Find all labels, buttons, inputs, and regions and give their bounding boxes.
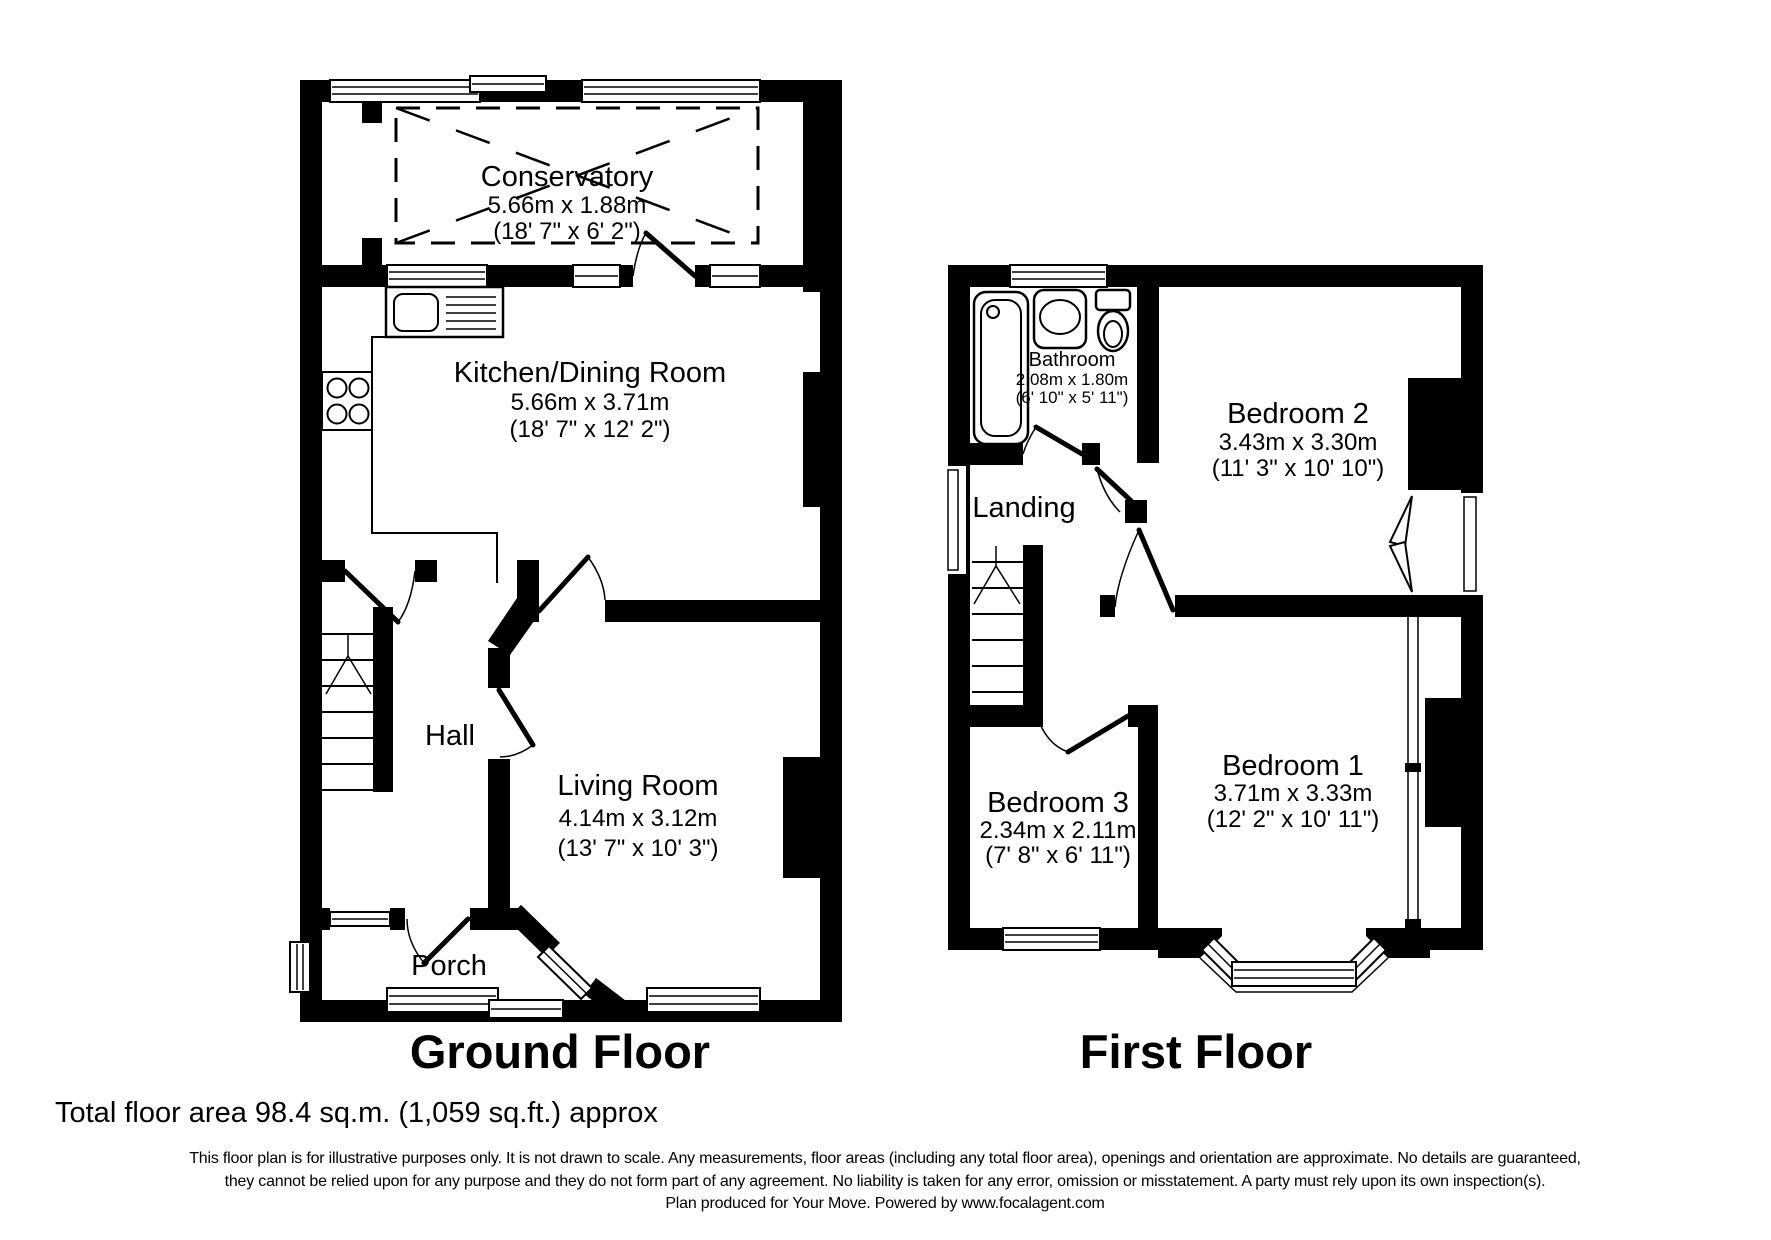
room-imperial: (18' 7" x 12' 2") — [510, 416, 671, 443]
footer: Total floor area 98.4 sq.m. (1,059 sq.ft… — [55, 1097, 1581, 1212]
room-name: Conservatory — [481, 161, 654, 193]
room-name: Living Room — [557, 770, 718, 802]
hob-icon — [322, 372, 372, 430]
bedroom-1-label: Bedroom 1 3.71m x 3.33m (12' 2" x 10' 11… — [1207, 750, 1380, 833]
conservatory-label: Conservatory 5.66m x 1.88m (18' 7" x 6' … — [481, 161, 654, 245]
window-icon — [387, 988, 498, 1012]
kitchen-dining-label: Kitchen/Dining Room 5.66m x 3.71m (18' 7… — [454, 357, 726, 443]
window-icon — [330, 80, 480, 102]
room-name: Bedroom 1 — [1222, 750, 1364, 782]
room-metric: 3.71m x 3.33m — [1214, 780, 1373, 807]
floorplan-drawing: Conservatory 5.66m x 1.88m (18' 7" x 6' … — [0, 0, 1771, 1240]
door-icon — [486, 688, 533, 759]
disclaimer-line-1: This floor plan is for illustrative purp… — [189, 1150, 1581, 1167]
casement-window-icon — [1390, 493, 1485, 595]
window-icon — [1010, 265, 1107, 287]
door-icon — [1097, 469, 1143, 512]
stairs-icon — [322, 634, 373, 790]
room-imperial: (12' 2" x 10' 11") — [1207, 806, 1380, 833]
room-name: Landing — [972, 492, 1075, 524]
room-imperial: (7' 8" x 6' 11") — [985, 842, 1131, 869]
room-metric: 2.34m x 2.11m — [980, 817, 1137, 844]
hall-label: Hall — [425, 720, 475, 752]
ground-floor-plan: Conservatory 5.66m x 1.88m (18' 7" x 6' … — [290, 76, 842, 1078]
toilet-icon — [1096, 290, 1130, 351]
window-icon — [470, 76, 546, 92]
floorplan-page: Conservatory 5.66m x 1.88m (18' 7" x 6' … — [0, 0, 1771, 1240]
window-icon — [710, 265, 760, 287]
door-icon — [1023, 427, 1082, 454]
room-name: Hall — [425, 720, 475, 752]
room-metric: 4.14m x 3.12m — [559, 805, 718, 832]
window-icon — [942, 466, 966, 574]
first-floor-title: First Floor — [1080, 1025, 1312, 1078]
room-imperial: (13' 7" x 10' 3") — [558, 835, 719, 862]
door-icon — [633, 233, 695, 289]
window-icon — [573, 265, 620, 287]
window-icon — [538, 946, 592, 999]
room-name: Bedroom 3 — [987, 787, 1129, 819]
room-metric: 2.08m x 1.80m — [1016, 370, 1128, 389]
room-metric: 5.66m x 1.88m — [488, 192, 647, 219]
window-icon — [1405, 608, 1421, 928]
window-icon — [647, 988, 760, 1012]
window-icon — [1232, 962, 1356, 986]
living-room-label: Living Room 4.14m x 3.12m (13' 7" x 10' … — [557, 770, 718, 862]
room-name: Kitchen/Dining Room — [454, 357, 726, 389]
window-icon — [290, 942, 310, 992]
total-floor-area: Total floor area 98.4 sq.m. (1,059 sq.ft… — [55, 1097, 658, 1129]
room-metric: 3.43m x 3.30m — [1219, 429, 1378, 456]
disclaimer-line-2: they cannot be relied upon for any purpo… — [225, 1173, 1546, 1190]
room-name: Bathroom — [1029, 349, 1116, 371]
ground-floor-title: Ground Floor — [410, 1025, 710, 1078]
room-name: Bedroom 2 — [1227, 398, 1369, 430]
room-name: Porch — [411, 950, 487, 982]
door-icon — [1115, 530, 1173, 610]
bathtub-icon — [974, 292, 1028, 444]
window-icon — [387, 265, 487, 287]
bay-window — [1158, 926, 1430, 992]
window-icon — [330, 912, 390, 926]
window-icon — [1003, 928, 1100, 950]
first-floor-plan: Bathroom 2.08m x 1.80m (6' 10" x 5' 11")… — [942, 265, 1485, 1078]
kitchen-sink-icon — [386, 287, 503, 337]
bathroom-label: Bathroom 2.08m x 1.80m (6' 10" x 5' 11") — [1016, 349, 1129, 407]
door-icon — [539, 557, 605, 611]
room-metric: 5.66m x 3.71m — [511, 389, 670, 416]
disclaimer-line-3: Plan produced for Your Move. Powered by … — [665, 1195, 1104, 1212]
stairs-icon — [972, 546, 1023, 718]
landing-label: Landing — [972, 492, 1075, 524]
bedroom-3-label: Bedroom 3 2.34m x 2.11m (7' 8" x 6' 11") — [980, 787, 1137, 869]
porch-label: Porch — [411, 950, 487, 982]
window-icon — [582, 80, 760, 102]
door-icon — [1037, 716, 1128, 752]
room-imperial: (6' 10" x 5' 11") — [1016, 388, 1129, 407]
wall-porch-diagonal-upper — [514, 912, 553, 950]
bedroom-2-label: Bedroom 2 3.43m x 3.30m (11' 3" x 10' 10… — [1212, 398, 1385, 482]
window-icon — [489, 1000, 563, 1018]
washbasin-icon — [1034, 290, 1086, 348]
room-imperial: (11' 3" x 10' 10") — [1212, 455, 1385, 482]
room-imperial: (18' 7" x 6' 2") — [493, 218, 641, 245]
